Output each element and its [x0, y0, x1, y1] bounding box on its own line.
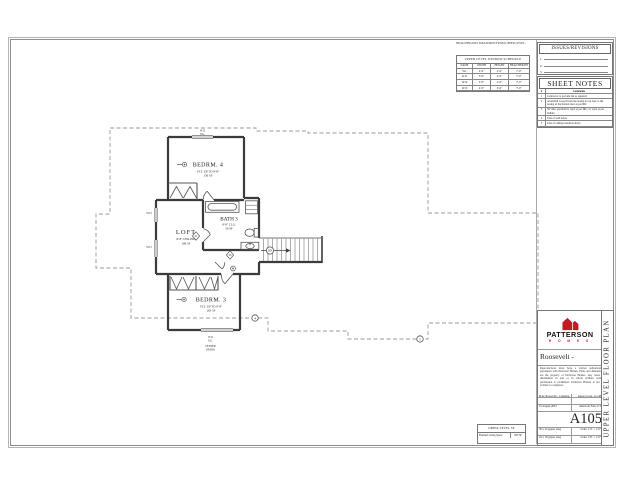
room-label-bedrm4: BEDRM. 4	[193, 163, 224, 169]
sf-summary-table: UPPER LEVEL SF Finished Living Space 903…	[477, 424, 526, 444]
smoke-detector-icon	[231, 266, 236, 271]
bifold-doors	[170, 187, 197, 199]
note-tag-4: 4	[252, 315, 258, 321]
sheet-notes-title: SHEET NOTES	[539, 78, 611, 89]
bedrm4-closet	[168, 183, 197, 200]
ceiling-fan-icon-bedrm3	[177, 297, 187, 301]
plan-title: Roosevelt - Contemp.	[538, 349, 604, 366]
room-label-loft: LOFT	[176, 229, 196, 236]
note-text: Line of ceiling transition above	[546, 121, 612, 126]
issue-blank-line	[544, 66, 608, 67]
paper-size-24x18: 24 x 18 (paper size)	[538, 435, 571, 443]
paper-size-36x24: 36 x 24 (paper size)	[538, 427, 571, 435]
brand-name: PATTERSON	[547, 331, 594, 339]
hall-closet-door	[215, 262, 225, 269]
window-note-on-rm: ON RM.	[206, 348, 216, 351]
toilet	[245, 228, 259, 237]
plan-name-cell: Plan: Roosevelt - Contemp.	[538, 394, 571, 404]
city-cell: American Fork, UT	[571, 404, 602, 411]
note-tag-5: 5	[417, 336, 423, 342]
bedrm3-closets	[170, 276, 218, 290]
room-label-bedrm3: BEDRM. 3	[196, 298, 227, 304]
note-text: A handrail is req'd from the nosing at t…	[546, 99, 612, 107]
issue-blank-line	[544, 59, 608, 60]
patterson-logo-cell: PATTERSON H O M E S	[538, 311, 602, 350]
room-label-bath3: BATH 3	[220, 217, 238, 223]
bathtub	[206, 202, 240, 213]
linen-cabinet	[246, 201, 258, 214]
stairs: DN	[259, 238, 322, 261]
window-tag-w13-upper: W13	[146, 212, 152, 215]
issue-number: 3.	[540, 71, 542, 74]
window-w13-lower	[155, 240, 157, 257]
window-w13-upper	[155, 208, 157, 222]
sheet-notes-table: # Comments 1 Contractor to provide fan a…	[537, 89, 613, 128]
door-tag-26: 26	[226, 251, 233, 259]
door-swings	[203, 191, 233, 284]
sf-table-title: UPPER LEVEL SF	[478, 425, 525, 433]
note-tag-5-label: 5	[419, 337, 421, 341]
ceiling-fan-icon-bedrm4	[177, 162, 187, 166]
bifold-doors	[171, 277, 218, 289]
sf-row-value: 903 SF	[511, 433, 525, 438]
window-w12	[192, 136, 213, 138]
scale-quarter-inch: Scale: 1/4" = 1'-0"	[571, 427, 602, 435]
window-schedule-title: UPPER LEVEL WINDOW SCHEDULE	[457, 56, 529, 64]
note-num: 2	[538, 99, 546, 107]
window-tag-w11-eg: EG.	[208, 339, 213, 342]
window-schedule-table: UPPER LEVEL WINDOW SCHEDULE NAME WIDTH H…	[456, 55, 530, 92]
room-sf-bedrm4: 156 SF	[204, 174, 213, 178]
issue-blank-line	[544, 72, 608, 73]
arrowhead-icon	[286, 248, 291, 252]
schedule-cell: 7'-0"	[509, 86, 529, 92]
title-block: PATTERSON H O M E S Roosevelt - Contemp.…	[537, 310, 603, 446]
window-tag-w12-eg: EG.	[200, 133, 205, 136]
issues-revisions-title: ISSUES/REVISIONS	[539, 44, 611, 54]
bath3-door	[203, 229, 210, 242]
roof-outline-dashed	[96, 128, 538, 339]
note-text: 36" min. guardrail is req'd as per IRC, …	[546, 108, 612, 116]
sheet-number: A105	[538, 411, 604, 428]
issue-number: 1.	[540, 58, 542, 61]
window-schedule-note: HEAD HEIGHTS MEASURED FROM UPPER LEVEL.	[449, 42, 533, 46]
sheet-title-vertical: UPPER LEVEL FLOOR PLAN	[604, 319, 611, 437]
schedule-cell: W13	[457, 86, 473, 92]
bedrm3-door	[221, 274, 233, 284]
room-sf-bath3: 56 SF	[225, 227, 232, 231]
schedule-cell: 2'-0"	[473, 86, 491, 92]
note-num: 5	[538, 121, 546, 126]
bedrm4-door	[203, 191, 214, 200]
note-tag-4-label: 4	[254, 316, 256, 320]
note-num: 3	[538, 108, 546, 116]
room-sf-loft: 166 SF	[182, 241, 191, 245]
issues-revisions-panel: ISSUES/REVISIONS 1. 2. 3.	[537, 42, 613, 75]
sf-row-label: Finished Living Space	[478, 433, 511, 438]
window-w11	[201, 329, 233, 331]
window-tag-w13-lower: W13	[146, 246, 152, 249]
scale-eighth-inch: Scale: 1/8" = 1'-0"	[571, 435, 602, 443]
date-cell: 10 August 2023	[538, 404, 571, 411]
sheet-title-strip: UPPER LEVEL FLOOR PLAN	[601, 310, 614, 446]
room-sf-bedrm3: 163 SF	[207, 309, 216, 313]
drawing-sheet: 4 5	[0, 0, 622, 480]
vanity-sink	[241, 242, 259, 249]
brand-sub: H O M E S	[549, 339, 591, 344]
patterson-homes-logo-icon	[558, 316, 582, 331]
schedule-cell: 3'-0"	[491, 86, 509, 92]
issue-number: 2.	[540, 65, 542, 68]
lot-cell: Aurora Crest, Lot 48	[571, 394, 602, 404]
